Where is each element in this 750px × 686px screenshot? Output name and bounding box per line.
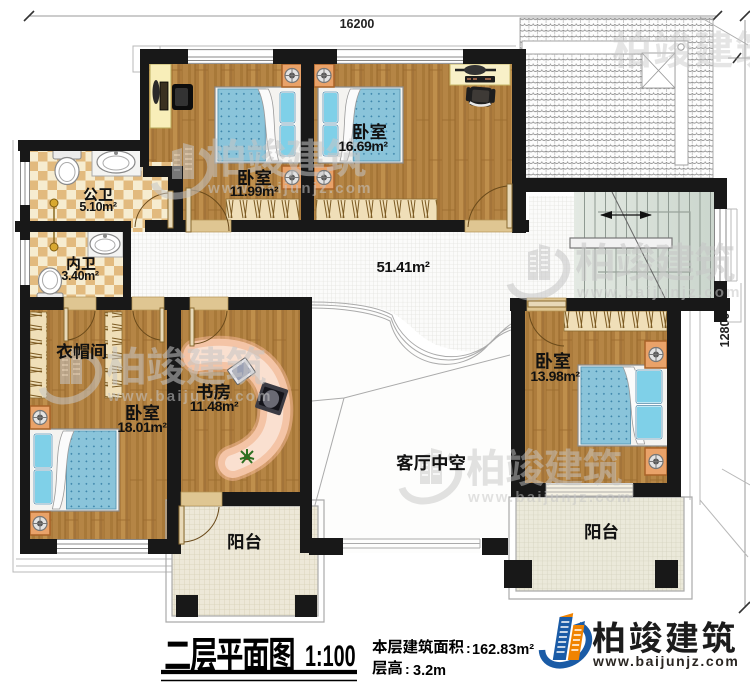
svg-text:16200: 16200 xyxy=(340,17,375,31)
svg-text:3.40m²: 3.40m² xyxy=(61,269,98,283)
svg-text:www.baijunjz.com: www.baijunjz.com xyxy=(576,284,742,301)
svg-text:11.99m²: 11.99m² xyxy=(230,183,279,199)
svg-text:16.69m²: 16.69m² xyxy=(338,138,388,154)
svg-text::: : xyxy=(466,640,471,656)
svg-text:www.baijunjz.com: www.baijunjz.com xyxy=(467,489,633,506)
svg-text::: : xyxy=(405,661,410,677)
svg-text:51.41m²: 51.41m² xyxy=(376,259,429,276)
svg-text:www.baijunjz.com: www.baijunjz.com xyxy=(592,653,739,669)
svg-text:11.48m²: 11.48m² xyxy=(190,398,239,414)
svg-text:5.10m²: 5.10m² xyxy=(79,200,116,214)
svg-text:18.01m²: 18.01m² xyxy=(117,419,167,435)
svg-text:3.2m: 3.2m xyxy=(413,663,446,679)
svg-text:162.83m²: 162.83m² xyxy=(472,642,534,658)
svg-text:1:100: 1:100 xyxy=(305,640,356,673)
svg-text:13.98m²: 13.98m² xyxy=(530,368,580,384)
